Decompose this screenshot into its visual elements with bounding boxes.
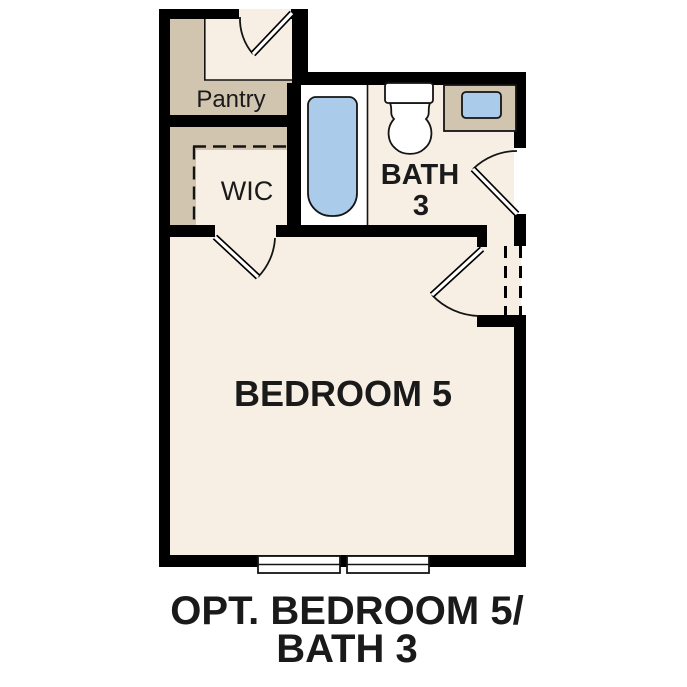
floor-plan-figure: Pantry WIC BATH 3 BEDROOM 5 OPT. BEDROOM… (0, 0, 687, 687)
wall-wic-bath (287, 83, 301, 237)
wall-left (159, 9, 170, 567)
wall-door-stub-bottom (477, 315, 514, 327)
wall-top-a (159, 9, 239, 19)
wic-label: WIC (221, 176, 273, 206)
wall-bottom (159, 555, 526, 567)
wall-right-mid (514, 214, 526, 246)
floor-plan-canvas: Pantry WIC BATH 3 BEDROOM 5 OPT. BEDROOM… (0, 0, 687, 687)
pantry-vestibule-floor (204, 9, 292, 80)
wall-mid-left (159, 225, 215, 237)
wall-mid-right (276, 225, 487, 237)
bath-label-line2: 3 (413, 190, 429, 222)
window-icon (347, 556, 429, 573)
pantry-label: Pantry (196, 86, 265, 113)
bathtub-icon (308, 97, 357, 216)
sink-icon (462, 92, 501, 118)
bedroom-label: BEDROOM 5 (234, 373, 452, 414)
wic-doorway-floor (215, 225, 276, 237)
wall-pantry-wic (159, 115, 292, 127)
window-icon (258, 556, 340, 573)
wall-vestibule-right (292, 9, 308, 77)
caption-line2: BATH 3 (276, 627, 417, 671)
bath-label-line1: BATH (381, 159, 459, 191)
wall-door-stub-top (477, 225, 487, 247)
wall-right-lower (514, 315, 526, 567)
